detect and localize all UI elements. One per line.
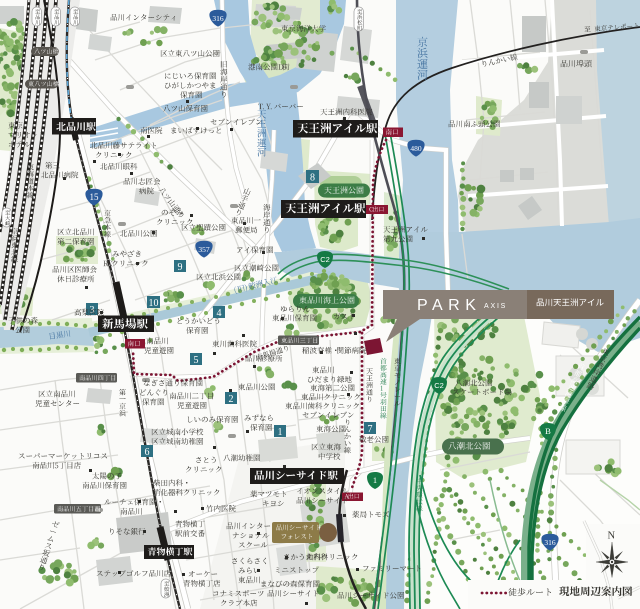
svg-text:PARK: PARK	[417, 297, 481, 314]
svg-text:6: 6	[145, 447, 150, 458]
svg-text:8: 8	[310, 173, 315, 184]
svg-text:9: 9	[178, 262, 183, 273]
svg-text:10: 10	[149, 298, 159, 309]
svg-text:C2: C2	[320, 255, 330, 264]
svg-text:4: 4	[217, 308, 222, 319]
svg-text:15: 15	[90, 192, 100, 202]
svg-text:316: 316	[212, 14, 224, 23]
svg-text:1: 1	[373, 475, 377, 485]
svg-text:B: B	[545, 426, 551, 436]
svg-text:1: 1	[278, 427, 283, 438]
svg-text:5: 5	[194, 355, 199, 366]
svg-text:AXIS: AXIS	[484, 303, 507, 310]
svg-text:N: N	[608, 531, 616, 542]
svg-text:C2: C2	[434, 381, 444, 390]
svg-text:7: 7	[368, 424, 373, 435]
svg-text:357: 357	[198, 245, 210, 254]
svg-text:316: 316	[544, 538, 556, 547]
svg-text:2: 2	[229, 394, 234, 405]
svg-text:480: 480	[410, 144, 422, 153]
